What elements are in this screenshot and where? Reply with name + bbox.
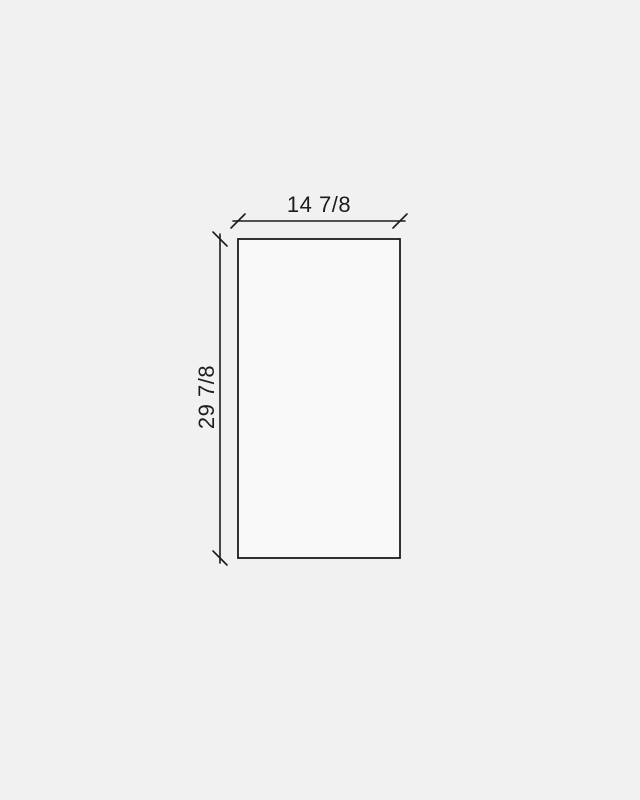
height-dimension-label: 29 7/8 <box>196 365 218 429</box>
width-dimension-label: 14 7/8 <box>238 194 400 216</box>
technical-drawing <box>0 0 640 800</box>
panel-outline <box>238 239 400 558</box>
drawing-canvas: 14 7/8 29 7/8 <box>0 0 640 800</box>
